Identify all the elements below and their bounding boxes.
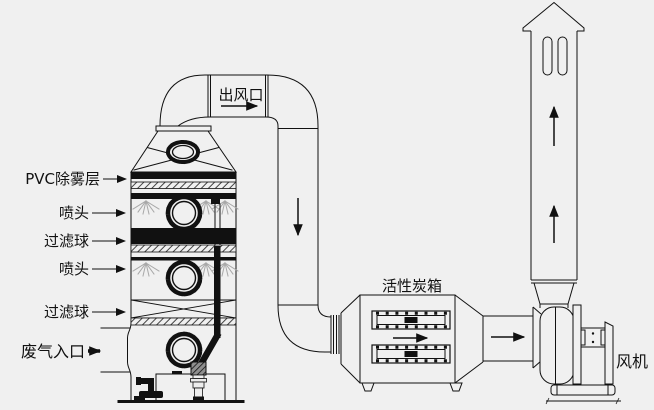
nozzle-bottom-label: 喷头 bbox=[59, 260, 89, 278]
activated-carbon-box bbox=[341, 295, 483, 391]
tank-nozzle bbox=[172, 371, 182, 375]
gas-inlet-duct bbox=[101, 328, 130, 372]
waste-gas-inlet-label: 废气入口 bbox=[21, 342, 85, 361]
fan bbox=[533, 305, 621, 404]
diagram-canvas: 出风口 活性炭箱 bbox=[0, 0, 654, 410]
sump-tank bbox=[156, 374, 225, 401]
exhaust-stack bbox=[523, 3, 584, 309]
motor-bracket bbox=[605, 322, 613, 384]
fan-motor bbox=[581, 328, 605, 347]
manhole-flange-icon bbox=[168, 262, 200, 294]
cap-louver bbox=[543, 37, 552, 75]
box-foot bbox=[450, 383, 462, 391]
spray-section-bottom bbox=[133, 262, 238, 294]
filter-ball-layer-top bbox=[131, 228, 236, 244]
downcomer-duct bbox=[278, 126, 339, 354]
fan-label: 风机 bbox=[616, 352, 648, 371]
box-to-fan-duct bbox=[483, 316, 533, 361]
pvc-demister-label: PVC除雾层 bbox=[25, 170, 100, 188]
filter-ball-top-label: 过滤球 bbox=[44, 232, 89, 250]
fan-side-plate bbox=[573, 305, 581, 384]
waste-gas-treatment-diagram: 出风口 活性炭箱 bbox=[0, 0, 654, 410]
manhole-flange-icon bbox=[168, 334, 200, 366]
cap-louver bbox=[558, 37, 567, 75]
pvc-demister-layer bbox=[131, 182, 236, 189]
nozzle-top-label: 喷头 bbox=[59, 204, 89, 222]
component-labels: PVC除雾层 喷头 过滤球 喷头 过滤球 废气入口 bbox=[21, 170, 126, 361]
spray-tower bbox=[101, 126, 243, 402]
spray-pipe-tee bbox=[211, 196, 220, 204]
fan-base bbox=[551, 385, 615, 395]
fan-scroll bbox=[540, 307, 574, 384]
carbon-filter-cartridge bbox=[372, 345, 450, 363]
rain-cap bbox=[523, 3, 584, 32]
tower-left-wall bbox=[128, 172, 132, 400]
tower-top-flange bbox=[156, 126, 211, 131]
manhole-flange-icon bbox=[168, 197, 200, 229]
air-outlet-label: 出风口 bbox=[218, 86, 263, 104]
demister-top-plate bbox=[131, 172, 236, 179]
box-foot bbox=[362, 383, 374, 391]
filter-ball-bottom-label: 过滤球 bbox=[44, 303, 89, 321]
hood-flange-icon bbox=[168, 142, 198, 162]
carbon-box-label: 活性炭箱 bbox=[382, 277, 442, 295]
carbon-filter-cartridge bbox=[372, 311, 450, 329]
